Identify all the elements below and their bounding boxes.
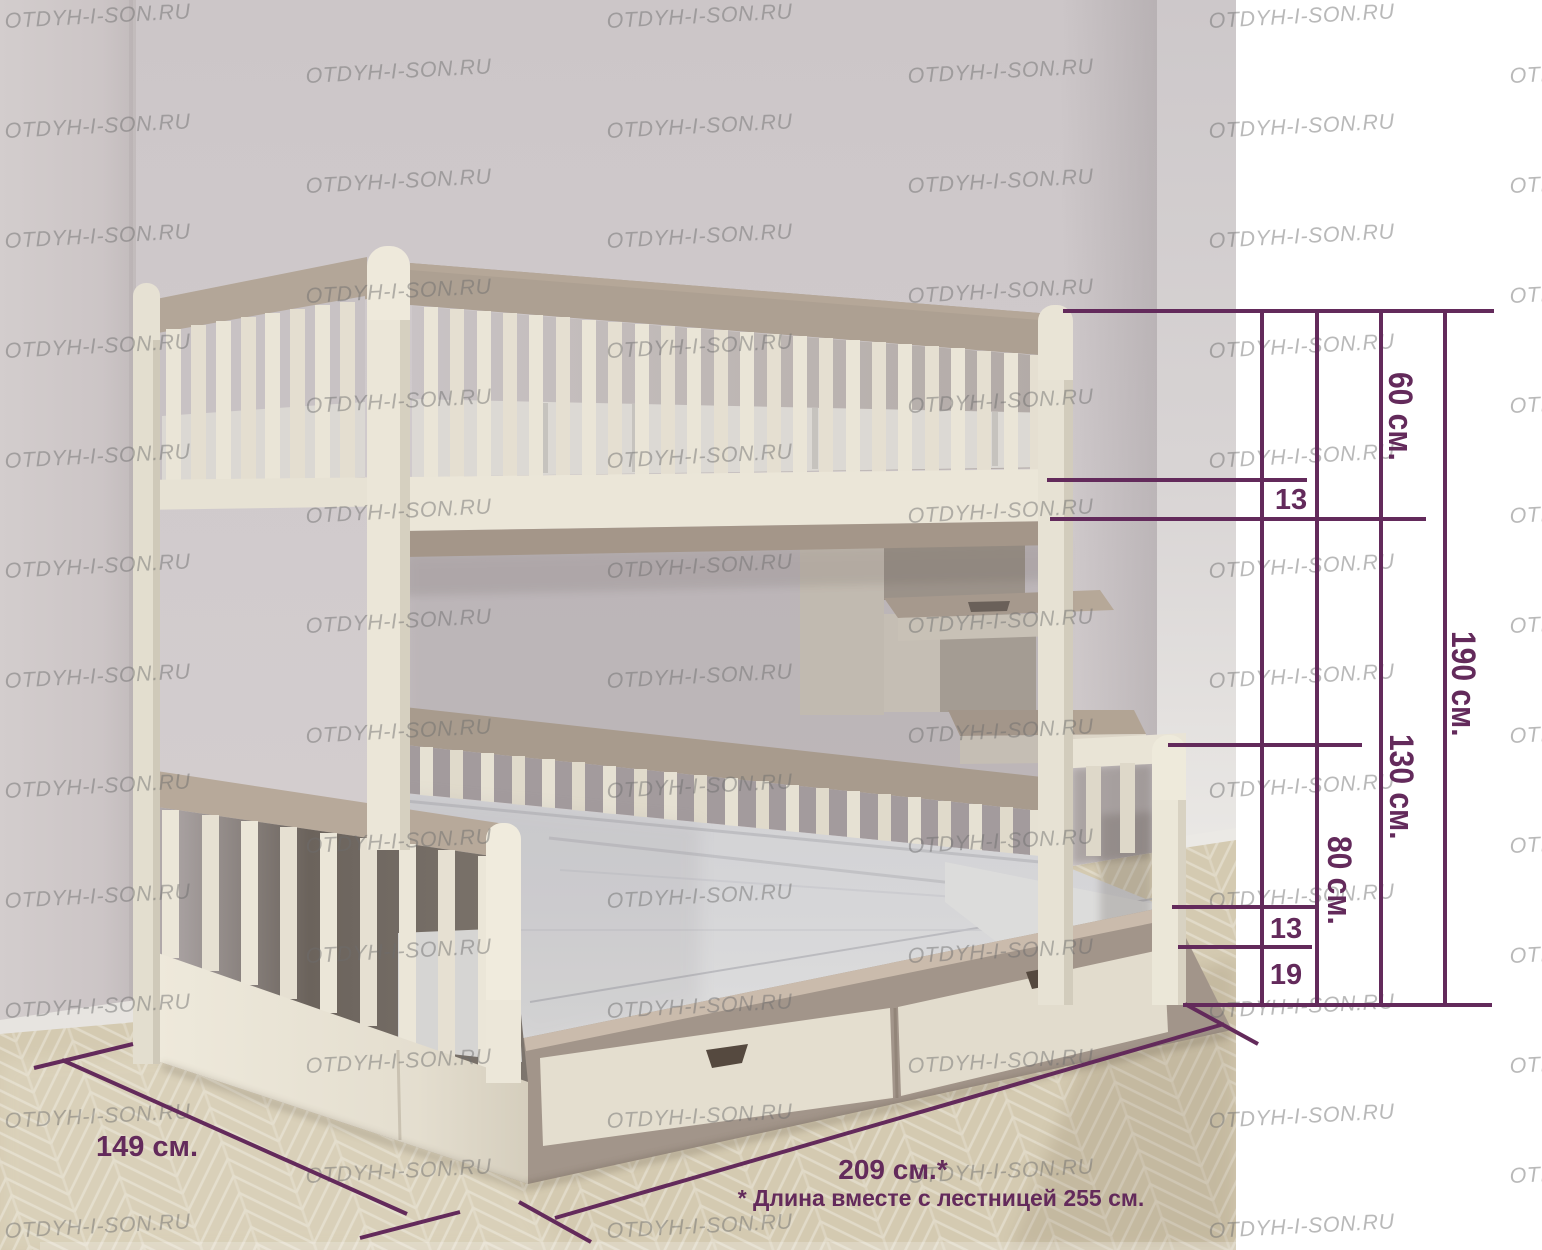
svg-text:* Длина вместе с лестницей 255: * Длина вместе с лестницей 255 см. — [738, 1185, 1145, 1211]
svg-text:13: 13 — [1275, 484, 1307, 516]
svg-text:149 см.: 149 см. — [96, 1131, 198, 1163]
svg-text:190 см.: 190 см. — [1445, 631, 1483, 737]
svg-text:209 см.*: 209 см.* — [838, 1154, 948, 1185]
svg-text:130 см.: 130 см. — [1383, 734, 1421, 840]
svg-text:60 см.: 60 см. — [1382, 372, 1420, 461]
svg-text:19: 19 — [1270, 959, 1302, 991]
svg-text:13: 13 — [1270, 913, 1302, 945]
svg-text:80 см.: 80 см. — [1321, 836, 1359, 925]
